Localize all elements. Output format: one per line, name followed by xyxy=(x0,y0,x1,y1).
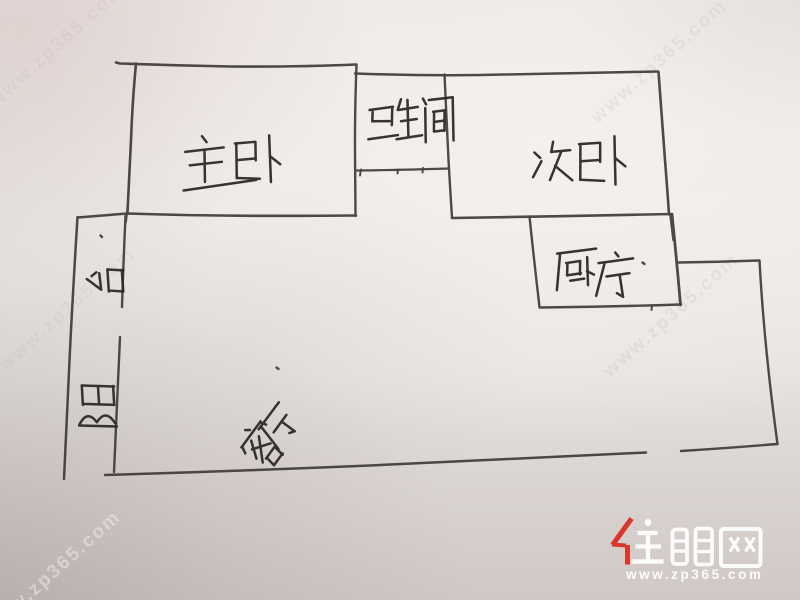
svg-text:www.zp365.com: www.zp365.com xyxy=(625,567,764,582)
